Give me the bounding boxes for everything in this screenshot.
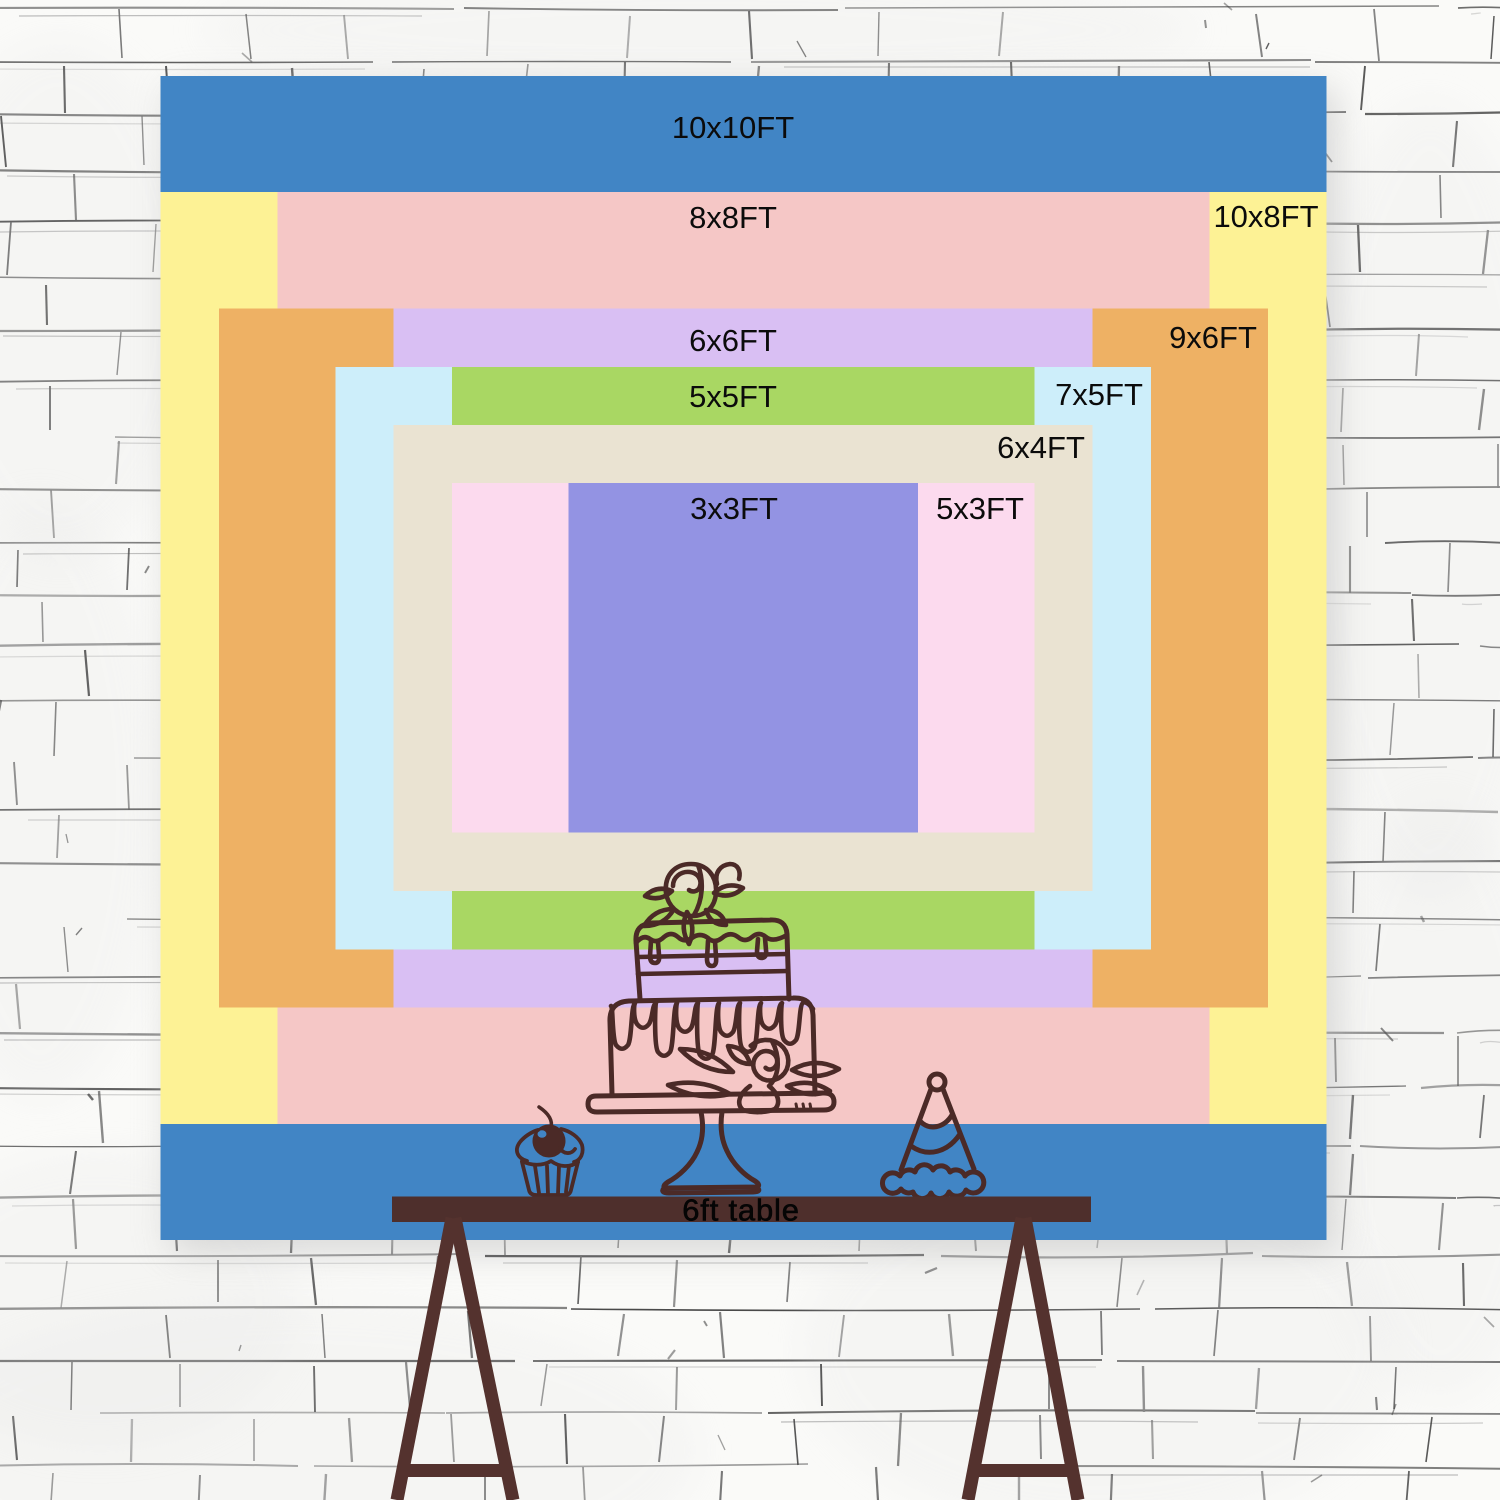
svg-text:6ft table: 6ft table bbox=[682, 1193, 800, 1228]
svg-text:6x4FT: 6x4FT bbox=[997, 430, 1085, 465]
svg-text:10x8FT: 10x8FT bbox=[1213, 199, 1318, 234]
svg-text:5x3FT: 5x3FT bbox=[936, 491, 1024, 526]
svg-text:3x3FT: 3x3FT bbox=[690, 491, 778, 526]
svg-text:7x5FT: 7x5FT bbox=[1055, 377, 1143, 412]
svg-text:9x6FT: 9x6FT bbox=[1169, 320, 1257, 355]
svg-text:6x6FT: 6x6FT bbox=[689, 323, 777, 358]
svg-text:5x5FT: 5x5FT bbox=[689, 379, 777, 414]
svg-text:10x10FT: 10x10FT bbox=[672, 110, 794, 145]
svg-text:8x8FT: 8x8FT bbox=[689, 200, 777, 235]
